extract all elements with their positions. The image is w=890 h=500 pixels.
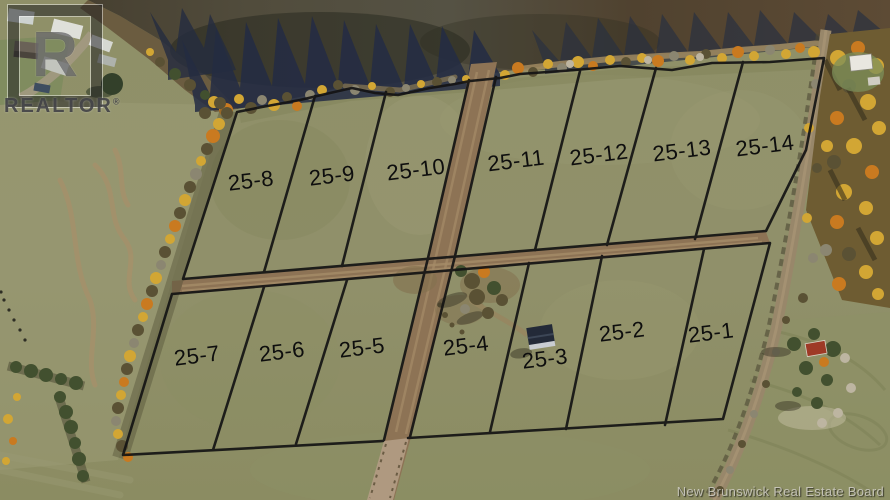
lot-label-25-7: 25-7	[173, 340, 222, 371]
white-house	[832, 52, 884, 92]
lot-label-25-9: 25-9	[308, 160, 357, 191]
lot-label-25-4: 25-4	[442, 330, 491, 361]
lot-label-25-2: 25-2	[598, 316, 647, 347]
aerial-lot-map: 25-8 25-9 25-10 25-11 25-12 25-13 25-14 …	[0, 0, 890, 500]
lot-label-25-6: 25-6	[258, 336, 307, 367]
watermark-text: New Brunswick Real Estate Board	[677, 484, 884, 499]
lot-label-25-5: 25-5	[338, 332, 387, 363]
lot-label-25-8: 25-8	[227, 165, 276, 196]
lot-label-25-3: 25-3	[521, 343, 570, 374]
lot-label-25-1: 25-1	[687, 317, 736, 348]
aerial-photo	[0, 0, 890, 500]
